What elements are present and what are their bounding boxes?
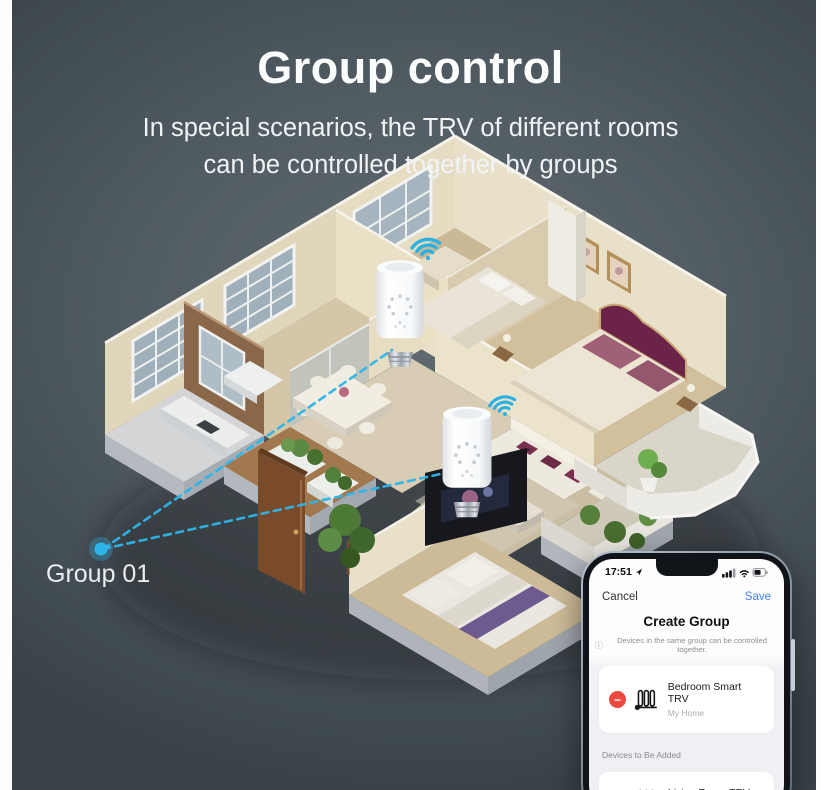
smartphone-mockup: 17:51 xyxy=(581,551,792,790)
phone-notch xyxy=(656,559,718,576)
group-node-dot xyxy=(89,537,113,561)
status-time: 17:51 xyxy=(605,566,643,578)
entry-door xyxy=(258,448,308,594)
cellular-signal-icon xyxy=(722,568,735,577)
app-screen: 17:51 xyxy=(589,559,784,790)
save-button[interactable]: Save xyxy=(745,591,771,603)
devices-to-be-added-label: Devices to Be Added xyxy=(602,750,771,760)
addable-device-row[interactable]: + Living Room TRV My Home xyxy=(599,772,774,790)
wifi-status-icon xyxy=(741,570,749,577)
device-name: Bedroom Smart TRV xyxy=(668,681,764,705)
screen-title: Create Group xyxy=(589,614,784,629)
location-arrow-icon xyxy=(635,568,643,576)
page-subtitle: In special scenarios, the TRV of differe… xyxy=(0,110,821,184)
info-note: ⓘ Devices in the same group can be contr… xyxy=(595,636,778,654)
subtitle-line-1: In special scenarios, the TRV of differe… xyxy=(0,110,821,147)
remove-device-button[interactable]: − xyxy=(609,691,626,708)
info-icon: ⓘ xyxy=(595,640,603,651)
page-right-margin xyxy=(816,0,821,790)
cancel-button[interactable]: Cancel xyxy=(602,591,638,603)
phone-power-button xyxy=(791,639,795,691)
group-device-row[interactable]: − Bedroom Smart TRV My Home xyxy=(599,666,774,733)
page-title: Group control xyxy=(0,42,821,94)
status-icons xyxy=(722,567,768,578)
clock-text: 17:51 xyxy=(605,566,632,578)
minus-icon: − xyxy=(614,694,621,706)
radiator-icon xyxy=(634,689,660,711)
device-info: Bedroom Smart TRV My Home xyxy=(668,681,764,718)
marketing-page: Group control In special scenarios, the … xyxy=(0,0,821,790)
phone-bezel: 17:51 xyxy=(583,553,790,790)
info-note-text: Devices in the same group can be control… xyxy=(606,636,778,654)
device-location: My Home xyxy=(668,708,764,718)
group-label: Group 01 xyxy=(46,560,150,589)
nav-bar: Cancel Save xyxy=(589,578,784,603)
page-left-margin xyxy=(0,0,12,790)
subtitle-line-2: can be controlled together by groups xyxy=(0,147,821,184)
battery-icon xyxy=(753,568,768,576)
